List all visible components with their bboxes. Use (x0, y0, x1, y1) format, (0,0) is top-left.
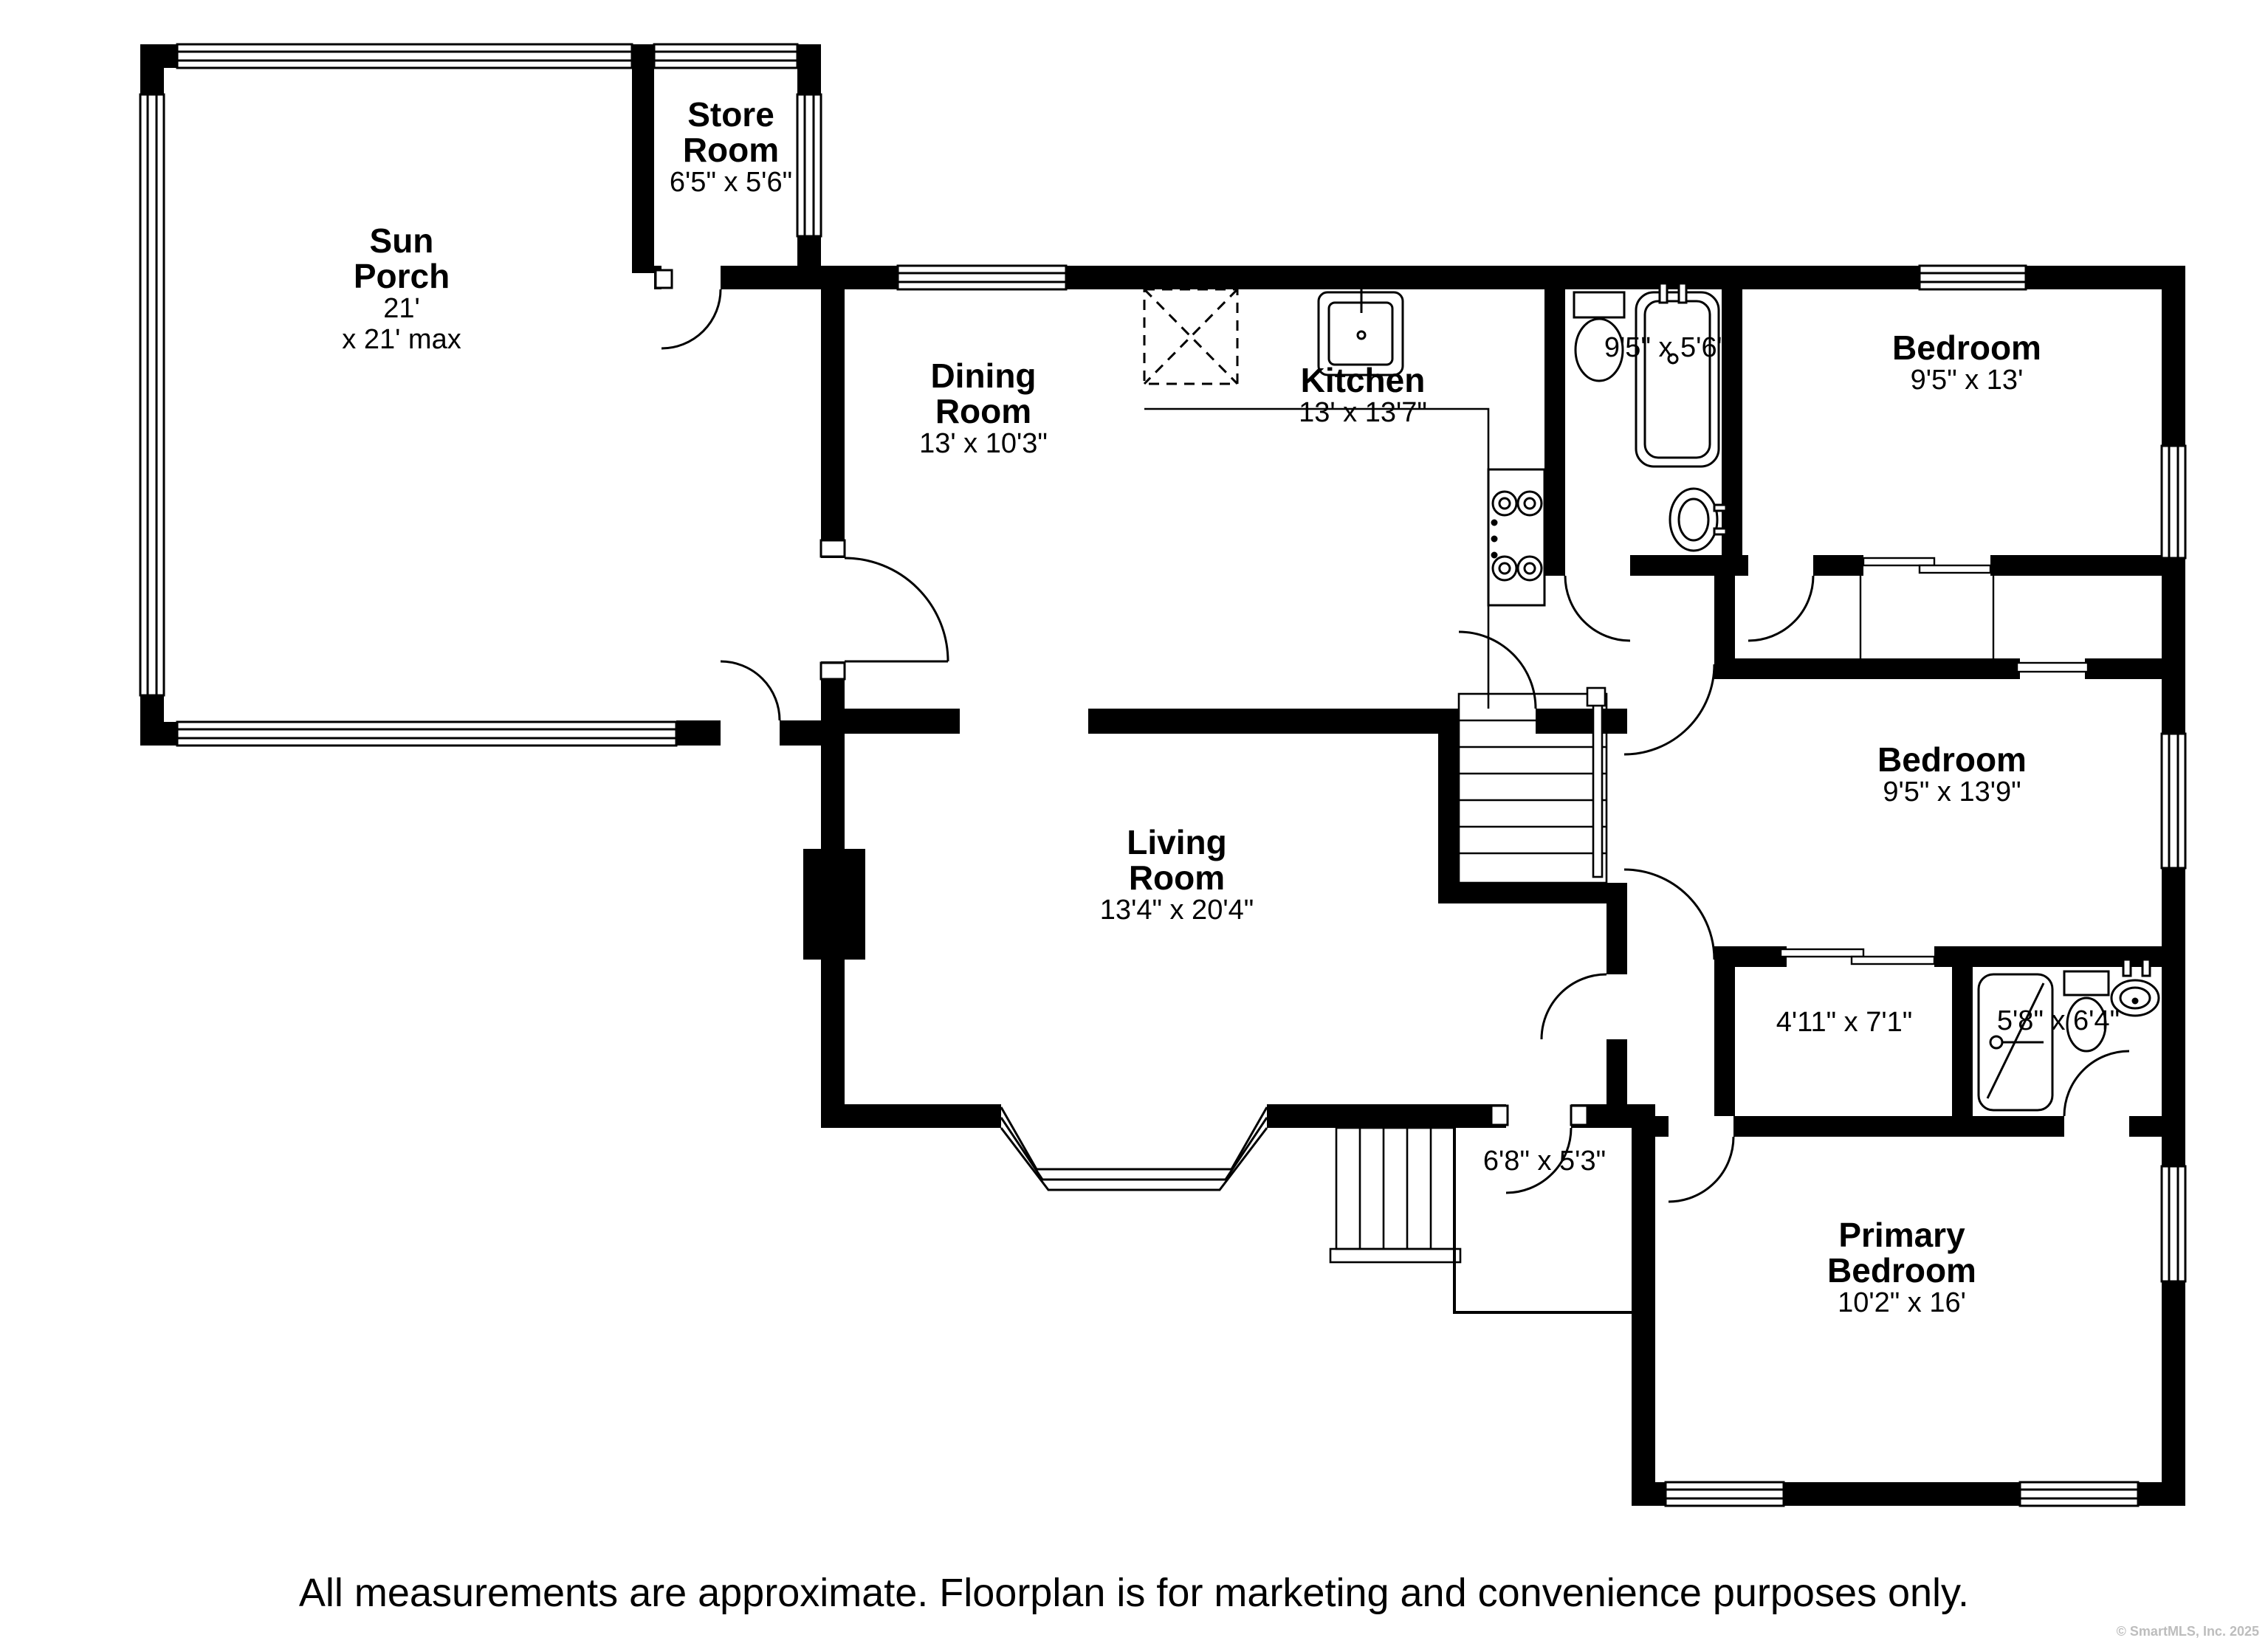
disclaimer-text: All measurements are approximate. Floorp… (0, 1571, 2268, 1617)
entry-stoop-steps (1330, 1128, 1460, 1262)
door-hinge-blocks (656, 270, 1587, 1125)
room-label-kitchen: Kitchen 13' x 13'7" (1299, 362, 1427, 429)
window (177, 722, 676, 746)
room-label-bathroom-primary: 5'8" x 6'4" (1997, 1006, 2120, 1037)
window (140, 94, 164, 695)
room-label-entry: 6'8" x 5'3" (1483, 1146, 1606, 1177)
door-arc (1542, 974, 1606, 1039)
kitchen-fixtures (1144, 275, 1544, 709)
window (2162, 1166, 2185, 1281)
kitchen-sink-icon (1319, 275, 1403, 375)
room-label-store-room: Store Room 6'5" x 5'6" (670, 97, 792, 199)
door-arc (721, 661, 780, 720)
window (654, 44, 797, 68)
appliance-dashed-box (1144, 289, 1237, 384)
room-label-closet: 4'11" x 7'1" (1776, 1008, 1912, 1039)
window (2162, 734, 2185, 868)
door-arc (661, 289, 721, 348)
stair-handrail (1593, 700, 1602, 877)
kitchen-counter (1144, 409, 1488, 709)
door-arc (1624, 664, 1714, 754)
door-arc (1748, 576, 1813, 641)
door-arc (1459, 632, 1536, 709)
room-label-living-room: Living Room 13'4" x 20'4" (1100, 824, 1254, 926)
window (2162, 446, 2185, 558)
room-label-bedroom-mid: Bedroom 9'5" x 13'9" (1877, 742, 2027, 808)
room-label-dining-room: Dining Room 13' x 10'3" (919, 358, 1048, 460)
door-arc (1565, 576, 1630, 641)
door-arc (1669, 1137, 1733, 1202)
window (797, 94, 821, 236)
door-arc (2064, 1051, 2129, 1116)
room-label-bedroom-top: Bedroom 9'5" x 13' (1892, 330, 2041, 396)
window (1666, 1482, 1784, 1506)
stair-newel (1587, 688, 1605, 706)
room-label-sun-porch: Sun Porch 21' x 21' max (342, 223, 461, 356)
door-arc (845, 558, 948, 661)
door-arc (1624, 870, 1714, 960)
window (1920, 266, 2026, 289)
bathroom-main-fixtures (1574, 283, 1726, 551)
window (2020, 1482, 2138, 1506)
window (177, 44, 632, 68)
sink-icon (1670, 489, 1726, 551)
shower-icon (1979, 974, 2052, 1110)
stove-icon (1488, 469, 1544, 605)
window (898, 266, 1066, 289)
room-label-primary-bedroom: Primary Bedroom 10'2" x 16' (1827, 1217, 1976, 1319)
bay-window (1001, 1107, 1267, 1190)
floorplan: Sun Porch 21' x 21' max Store Room 6'5" … (0, 0, 2268, 1649)
copyright-text: © SmartMLS, Inc. 2025 (2117, 1624, 2259, 1639)
bathtub-icon (1636, 283, 1719, 467)
room-label-bathroom-main: 9'5" x 5'6" (1604, 333, 1727, 364)
